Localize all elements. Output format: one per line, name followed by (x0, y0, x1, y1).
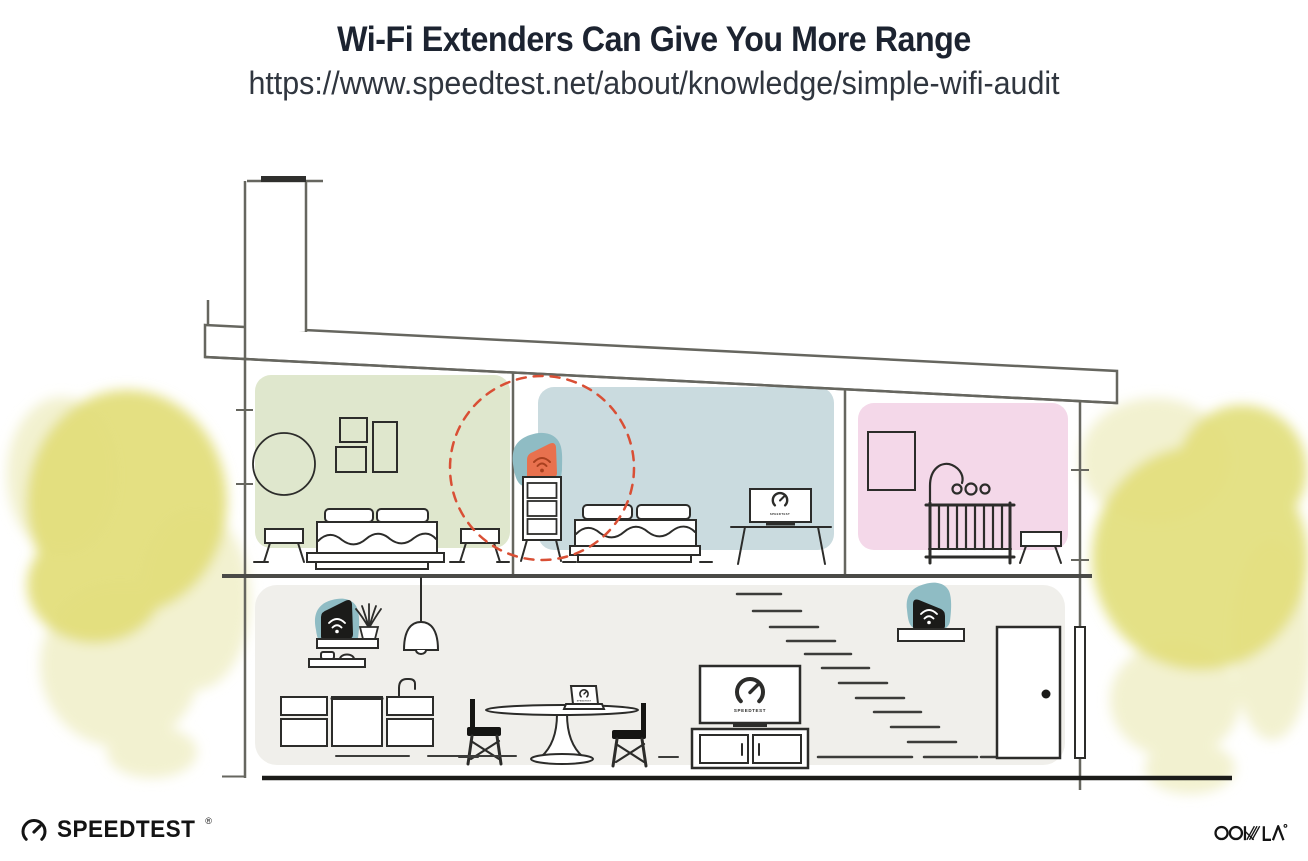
plant-pot (360, 627, 378, 639)
door-frame-pillar (1075, 627, 1085, 758)
foliage-right (1080, 398, 1308, 794)
door-knob (1042, 690, 1051, 699)
tv-living-label: SPEEDTEST (734, 708, 766, 713)
tv-living: SPEEDTEST (700, 666, 800, 727)
speedtest-logo: SPEEDTEST® (20, 816, 212, 844)
front-door (997, 627, 1060, 758)
house-illustration: SPEEDTEST (0, 0, 1308, 861)
ookla-logo: OOKLA (1214, 820, 1288, 848)
shelf-upper (317, 639, 378, 648)
foliage-left (7, 390, 250, 778)
tv-bedroom-label: SPEEDTEST (770, 512, 790, 516)
chimney (245, 176, 323, 356)
speedtest-trademark: ® (205, 816, 212, 826)
stairs-shelf (898, 629, 964, 641)
speedtest-gauge-icon (20, 816, 48, 844)
media-console (692, 729, 808, 768)
ookla-wordmark (1214, 820, 1288, 843)
speedtest-wordmark: SPEEDTEST (57, 816, 195, 844)
ookla-k-hatched (1245, 826, 1260, 840)
laptop-label: SPEEDTEST (577, 701, 592, 703)
